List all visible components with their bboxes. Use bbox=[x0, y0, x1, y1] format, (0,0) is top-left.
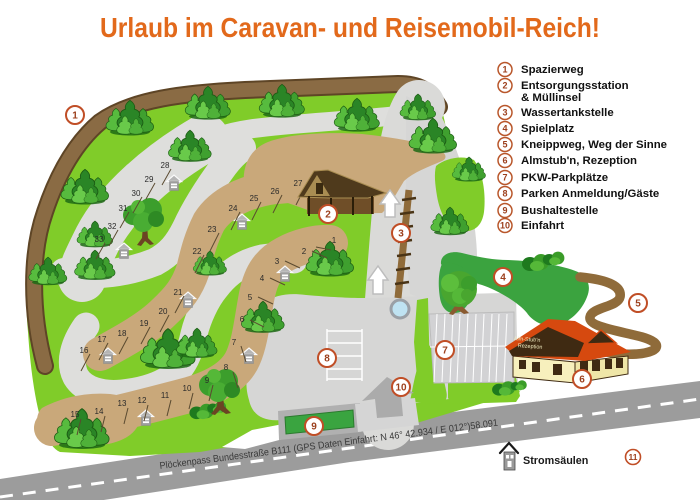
svg-text:PKW-Parkplätze: PKW-Parkplätze bbox=[521, 172, 608, 184]
svg-text:13: 13 bbox=[118, 399, 127, 408]
svg-text:5: 5 bbox=[635, 299, 641, 310]
svg-text:31: 31 bbox=[119, 204, 128, 213]
svg-text:7: 7 bbox=[232, 338, 237, 347]
svg-text:17: 17 bbox=[98, 335, 107, 344]
svg-text:2: 2 bbox=[302, 247, 307, 256]
svg-text:1: 1 bbox=[72, 111, 78, 122]
svg-text:9: 9 bbox=[311, 422, 317, 433]
svg-text:11: 11 bbox=[161, 391, 170, 400]
svg-text:4: 4 bbox=[260, 274, 265, 283]
svg-text:3: 3 bbox=[275, 257, 280, 266]
svg-text:3: 3 bbox=[502, 108, 507, 118]
svg-text:19: 19 bbox=[140, 319, 149, 328]
svg-text:10: 10 bbox=[183, 384, 192, 393]
svg-text:& Müllinsel: & Müllinsel bbox=[521, 92, 581, 104]
svg-text:Almstub'n, Rezeption: Almstub'n, Rezeption bbox=[521, 155, 637, 167]
svg-text:8: 8 bbox=[224, 363, 229, 372]
svg-text:5: 5 bbox=[248, 293, 253, 302]
svg-text:Urlaub im Caravan- und Reisemo: Urlaub im Caravan- und Reisemobil-Reich! bbox=[100, 12, 600, 43]
svg-text:15: 15 bbox=[71, 410, 80, 419]
svg-text:Spielplatz: Spielplatz bbox=[521, 123, 574, 135]
svg-text:14: 14 bbox=[95, 407, 104, 416]
svg-text:4: 4 bbox=[502, 124, 507, 134]
svg-text:7: 7 bbox=[442, 346, 448, 357]
svg-text:Kneippweg, Weg der Sinne: Kneippweg, Weg der Sinne bbox=[521, 139, 667, 151]
svg-text:12: 12 bbox=[138, 396, 147, 405]
svg-text:Parken Anmeldung/Gäste: Parken Anmeldung/Gäste bbox=[521, 188, 659, 200]
svg-text:33: 33 bbox=[95, 235, 104, 244]
svg-text:26: 26 bbox=[271, 187, 280, 196]
svg-text:24: 24 bbox=[229, 204, 238, 213]
svg-text:32: 32 bbox=[108, 222, 117, 231]
svg-text:Entsorgungsstation: Entsorgungsstation bbox=[521, 80, 629, 92]
svg-text:2: 2 bbox=[325, 210, 331, 221]
svg-text:10: 10 bbox=[395, 383, 407, 394]
svg-text:Wassertankstelle: Wassertankstelle bbox=[521, 107, 614, 119]
svg-text:6: 6 bbox=[240, 315, 245, 324]
svg-text:27: 27 bbox=[294, 179, 303, 188]
svg-text:6: 6 bbox=[502, 156, 507, 166]
svg-text:10: 10 bbox=[500, 221, 510, 231]
svg-text:23: 23 bbox=[208, 225, 217, 234]
svg-text:2: 2 bbox=[502, 81, 507, 91]
svg-text:16: 16 bbox=[80, 346, 89, 355]
svg-text:22: 22 bbox=[193, 247, 202, 256]
svg-text:6: 6 bbox=[579, 375, 585, 386]
svg-text:1: 1 bbox=[502, 65, 507, 75]
svg-text:20: 20 bbox=[159, 307, 168, 316]
svg-text:18: 18 bbox=[118, 329, 127, 338]
svg-text:25: 25 bbox=[250, 194, 259, 203]
svg-text:Einfahrt: Einfahrt bbox=[521, 220, 564, 232]
svg-text:8: 8 bbox=[502, 189, 507, 199]
svg-text:8: 8 bbox=[324, 354, 330, 365]
svg-text:9: 9 bbox=[205, 376, 210, 385]
svg-text:11: 11 bbox=[629, 452, 638, 462]
svg-text:Bushaltestelle: Bushaltestelle bbox=[521, 205, 598, 217]
svg-text:Stromsäulen: Stromsäulen bbox=[523, 455, 588, 467]
svg-text:29: 29 bbox=[145, 175, 154, 184]
svg-text:3: 3 bbox=[398, 229, 404, 240]
svg-text:5: 5 bbox=[502, 140, 507, 150]
svg-text:4: 4 bbox=[500, 273, 506, 284]
svg-text:30: 30 bbox=[132, 189, 141, 198]
svg-text:28: 28 bbox=[161, 161, 170, 170]
svg-text:7: 7 bbox=[502, 173, 507, 183]
svg-text:9: 9 bbox=[502, 206, 507, 216]
svg-text:1: 1 bbox=[332, 236, 337, 245]
svg-text:Spazierweg: Spazierweg bbox=[521, 64, 584, 76]
svg-text:21: 21 bbox=[174, 288, 183, 297]
